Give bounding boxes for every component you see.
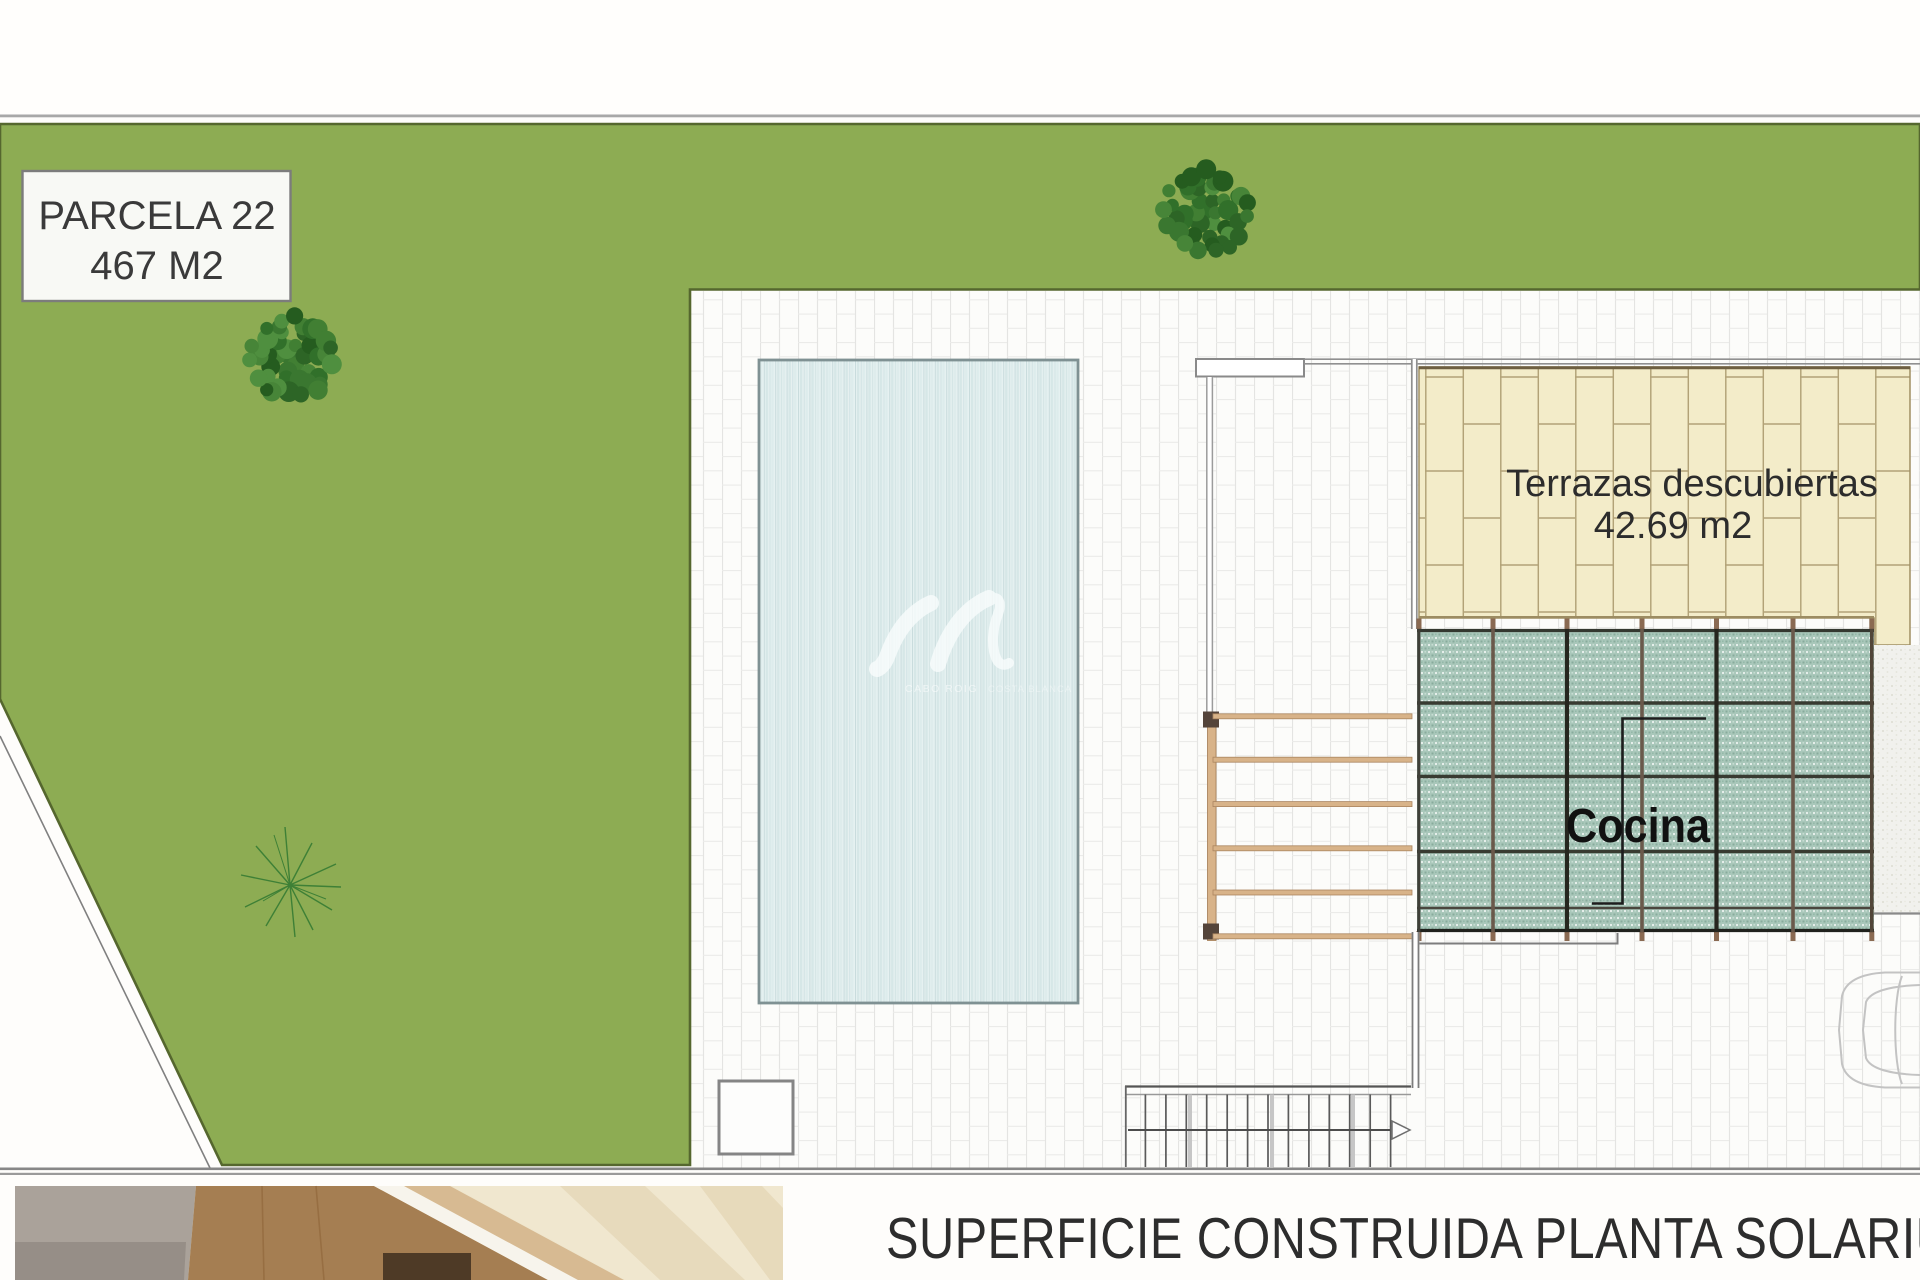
svg-text:PARCELA 22: PARCELA 22 <box>38 194 275 238</box>
svg-text:SUPERFICIE CONSTRUIDA PLANTA S: SUPERFICIE CONSTRUIDA PLANTA SOLARIUM <box>886 1207 1920 1271</box>
svg-text:CABO ROIG: CABO ROIG <box>905 683 978 695</box>
svg-text:467 M2: 467 M2 <box>90 244 223 288</box>
svg-text:COSTA BLANCA: COSTA BLANCA <box>988 684 1072 695</box>
svg-text:Cocina: Cocina <box>1566 799 1711 853</box>
svg-text:42.69 m2: 42.69 m2 <box>1594 505 1752 547</box>
svg-text:Terrazas descubiertas: Terrazas descubiertas <box>1506 463 1878 505</box>
